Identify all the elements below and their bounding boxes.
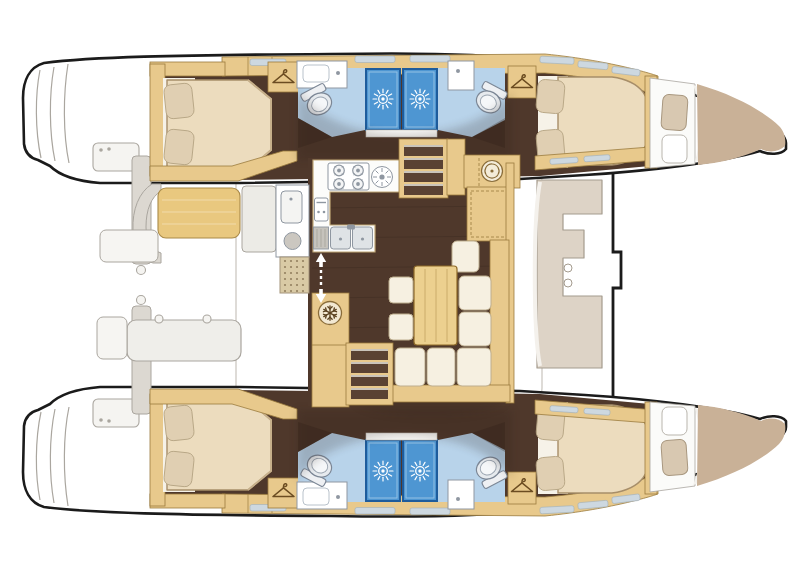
chart-table — [467, 187, 511, 241]
port-companionway-stairs — [399, 139, 448, 198]
oven-icon — [315, 198, 329, 221]
burner-icon — [353, 165, 364, 176]
settee-cushion — [457, 348, 491, 386]
drain-dot — [361, 237, 364, 240]
cupholder — [564, 279, 572, 287]
catamaran-floor-plan — [0, 0, 800, 570]
hull-window — [355, 56, 395, 63]
fridge-icon — [319, 302, 342, 325]
faucet — [347, 225, 355, 230]
burner-icon — [334, 179, 345, 190]
pillow — [163, 83, 194, 120]
bow-pad — [662, 135, 687, 163]
wet-bar-sink — [281, 191, 302, 223]
foredeck-seat — [537, 180, 602, 368]
locker-outline — [97, 317, 127, 359]
aft-cockpit — [97, 184, 309, 361]
drain-dot — [339, 237, 342, 240]
hanging-locker — [508, 66, 536, 98]
forward-beam-trampoline-edge — [613, 174, 621, 396]
burner-icon — [353, 179, 364, 190]
round-hob-icon — [372, 167, 393, 188]
table-fitting — [203, 315, 211, 323]
settee-back — [490, 240, 509, 390]
hatch-dot — [99, 148, 103, 152]
settee-back — [391, 385, 510, 402]
aft-cabin-headboard-wall — [150, 64, 165, 176]
helm-seat-outline — [100, 230, 158, 262]
hull-window — [540, 56, 574, 64]
table-fitting — [155, 315, 163, 323]
foredeck — [535, 174, 621, 396]
pillow — [536, 79, 566, 114]
teak-grate — [280, 257, 309, 293]
bench-end-module — [242, 186, 276, 252]
settee-cushion — [395, 348, 425, 386]
cockpit-bench-cushion — [158, 188, 240, 238]
settee-cushion — [459, 312, 491, 346]
cleat — [137, 266, 146, 275]
settee-cushion — [459, 276, 491, 310]
hanging-locker — [268, 62, 299, 92]
burner-icon — [334, 165, 345, 176]
ottoman-stool — [389, 277, 413, 303]
cupholder — [564, 264, 572, 272]
settee-cushion — [427, 348, 455, 386]
faucet-dot — [456, 69, 460, 73]
pillow — [163, 129, 194, 166]
bow-cushion — [661, 94, 688, 131]
faucet-dot — [336, 71, 340, 75]
floor-plan-canvas — [0, 0, 800, 570]
wet-bar-round-sink — [284, 233, 301, 250]
cockpit-table — [127, 320, 241, 361]
washbasin-counter — [448, 61, 474, 90]
round-appliance-icon — [482, 161, 503, 182]
hull-window — [410, 56, 450, 63]
ottoman-stool — [389, 314, 413, 340]
hatch-dot — [107, 147, 111, 151]
starboard-companionway-stairs — [346, 343, 393, 405]
